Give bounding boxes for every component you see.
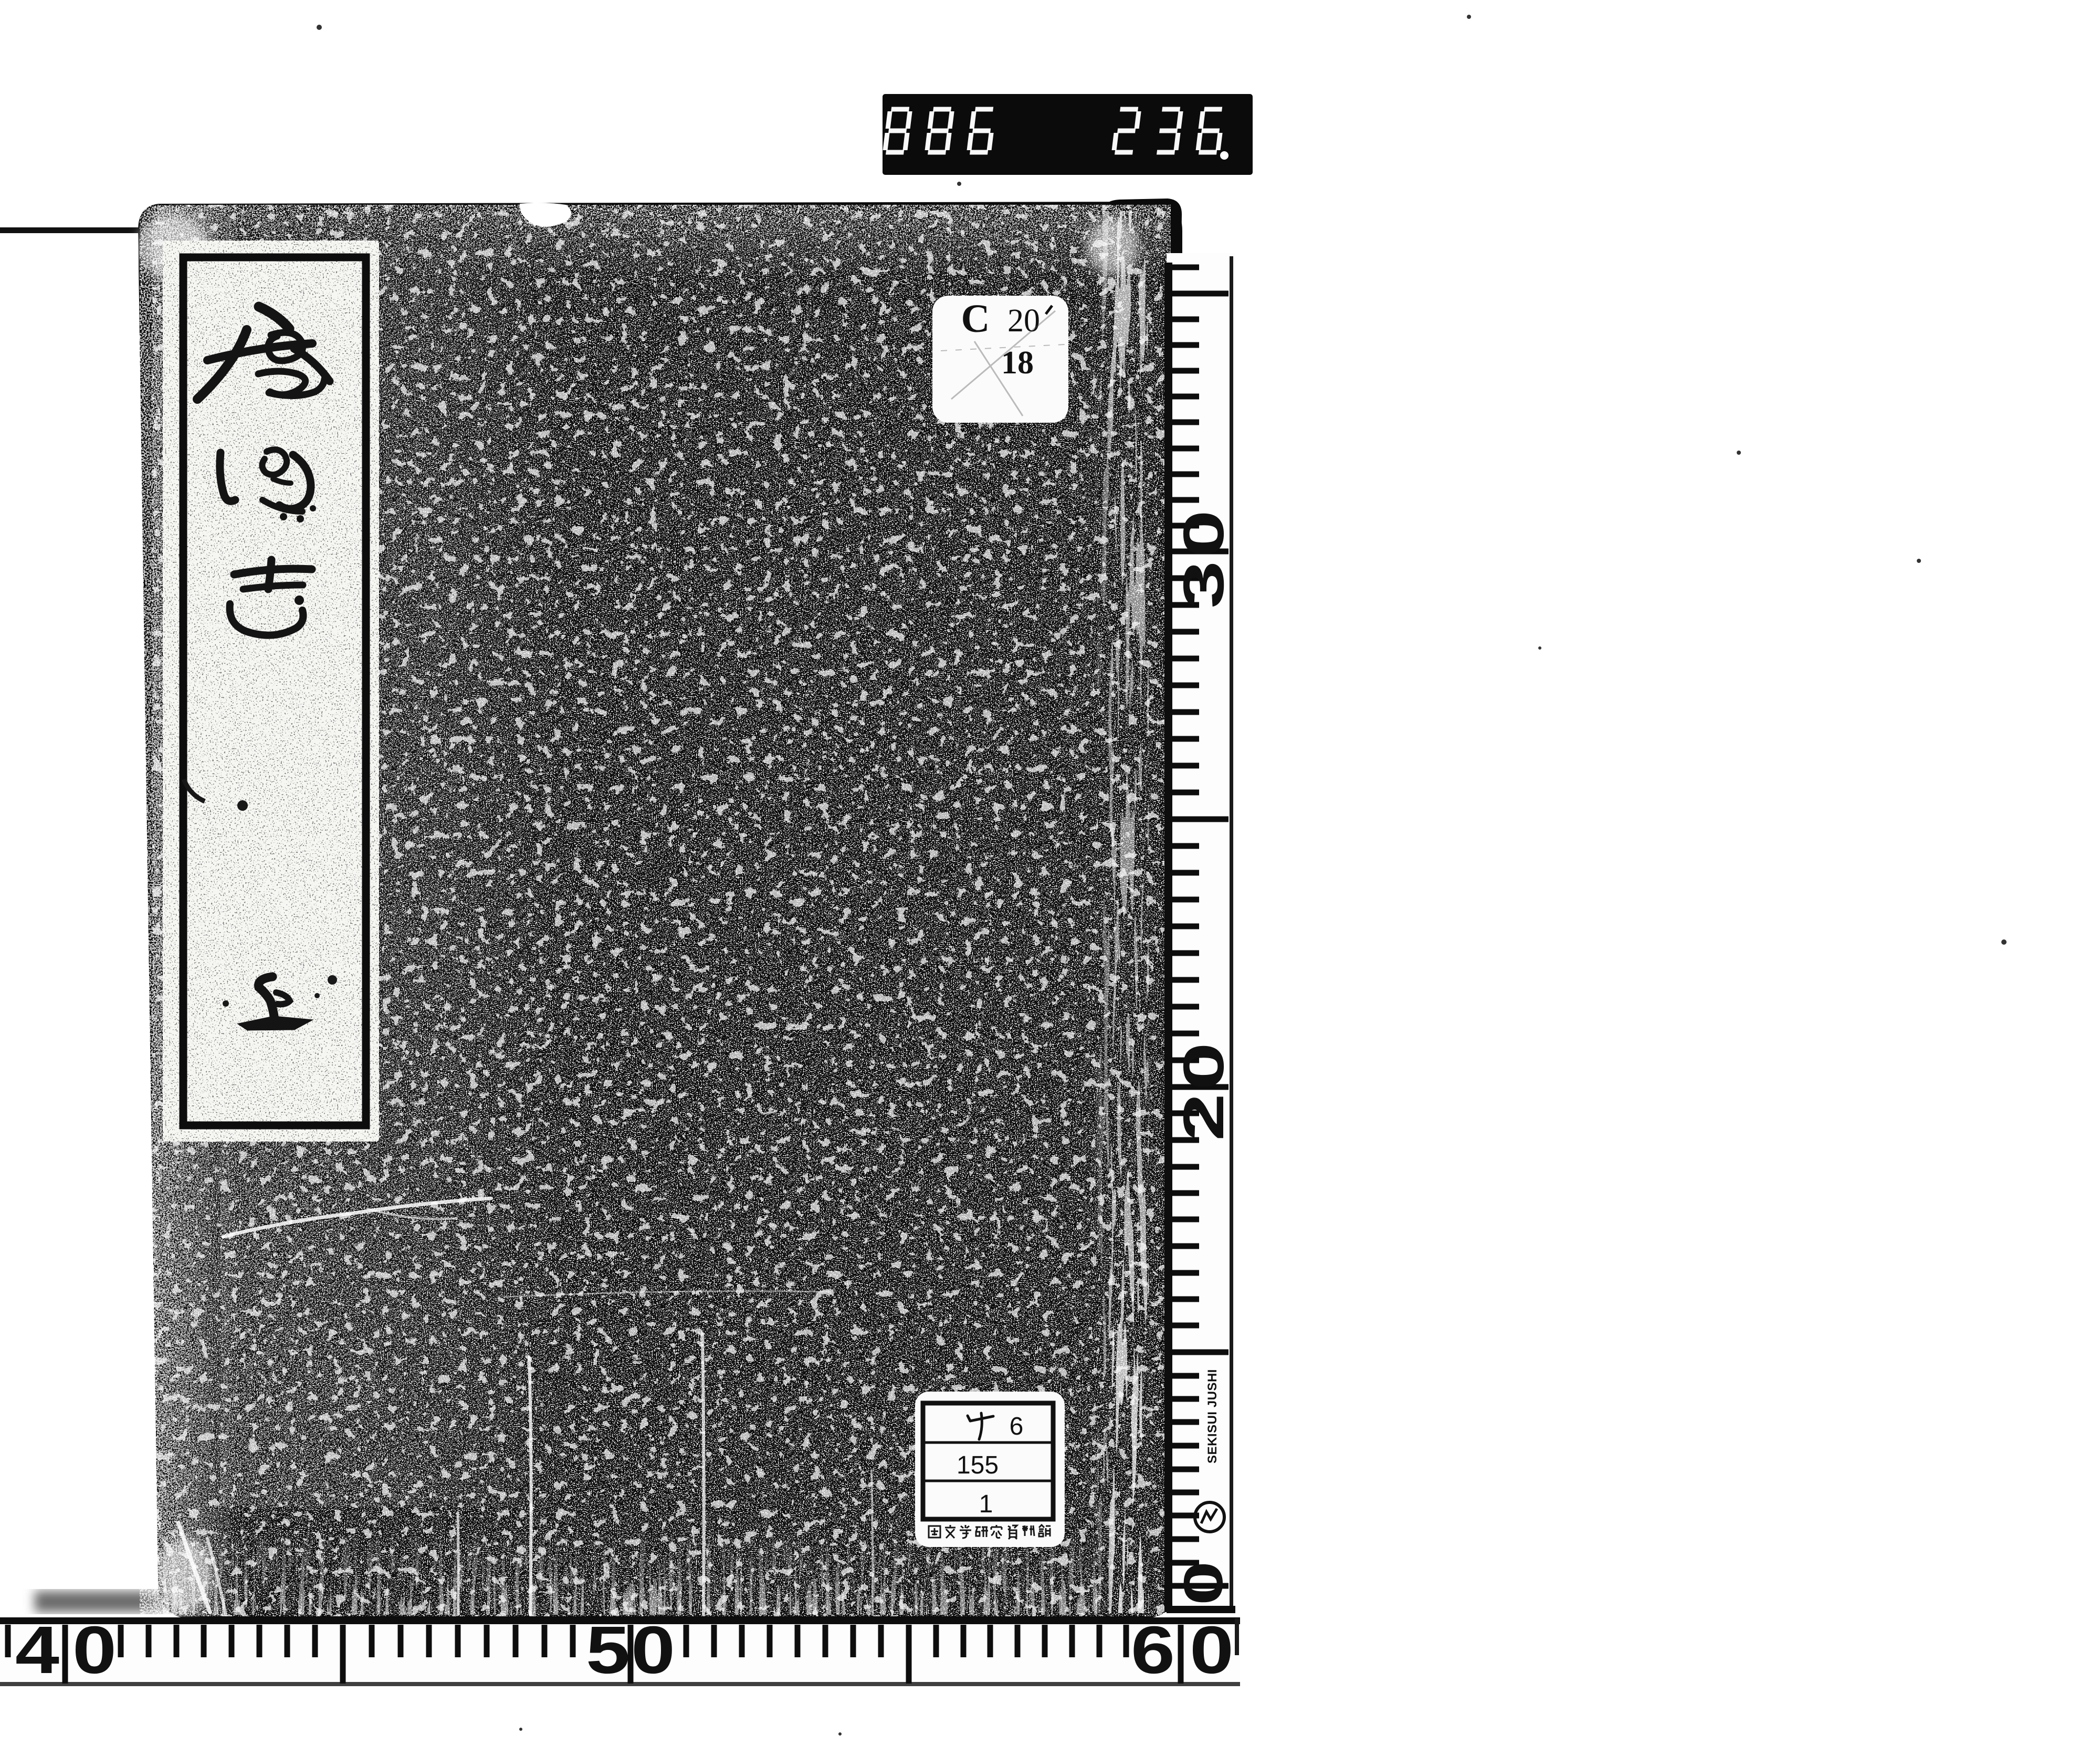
svg-text:4: 4 [15, 1612, 59, 1688]
svg-text:6: 6 [1131, 1612, 1175, 1688]
svg-text:1: 1 [979, 1490, 993, 1518]
svg-text:0: 0 [72, 1612, 117, 1688]
svg-text:0: 0 [1190, 1612, 1234, 1688]
svg-text:SEKISUI JUSHI: SEKISUI JUSHI [1205, 1369, 1220, 1464]
svg-text:0: 0 [631, 1612, 675, 1688]
svg-text:5: 5 [586, 1612, 630, 1688]
svg-text:155: 155 [957, 1451, 999, 1479]
svg-text:0: 0 [1172, 1561, 1234, 1606]
svg-text:C: C [961, 297, 990, 341]
svg-text:18: 18 [1001, 345, 1034, 381]
svg-text:20: 20 [1007, 303, 1040, 339]
svg-text:20: 20 [1172, 1039, 1236, 1141]
svg-text:6: 6 [1010, 1413, 1024, 1440]
svg-text:30: 30 [1172, 507, 1236, 609]
